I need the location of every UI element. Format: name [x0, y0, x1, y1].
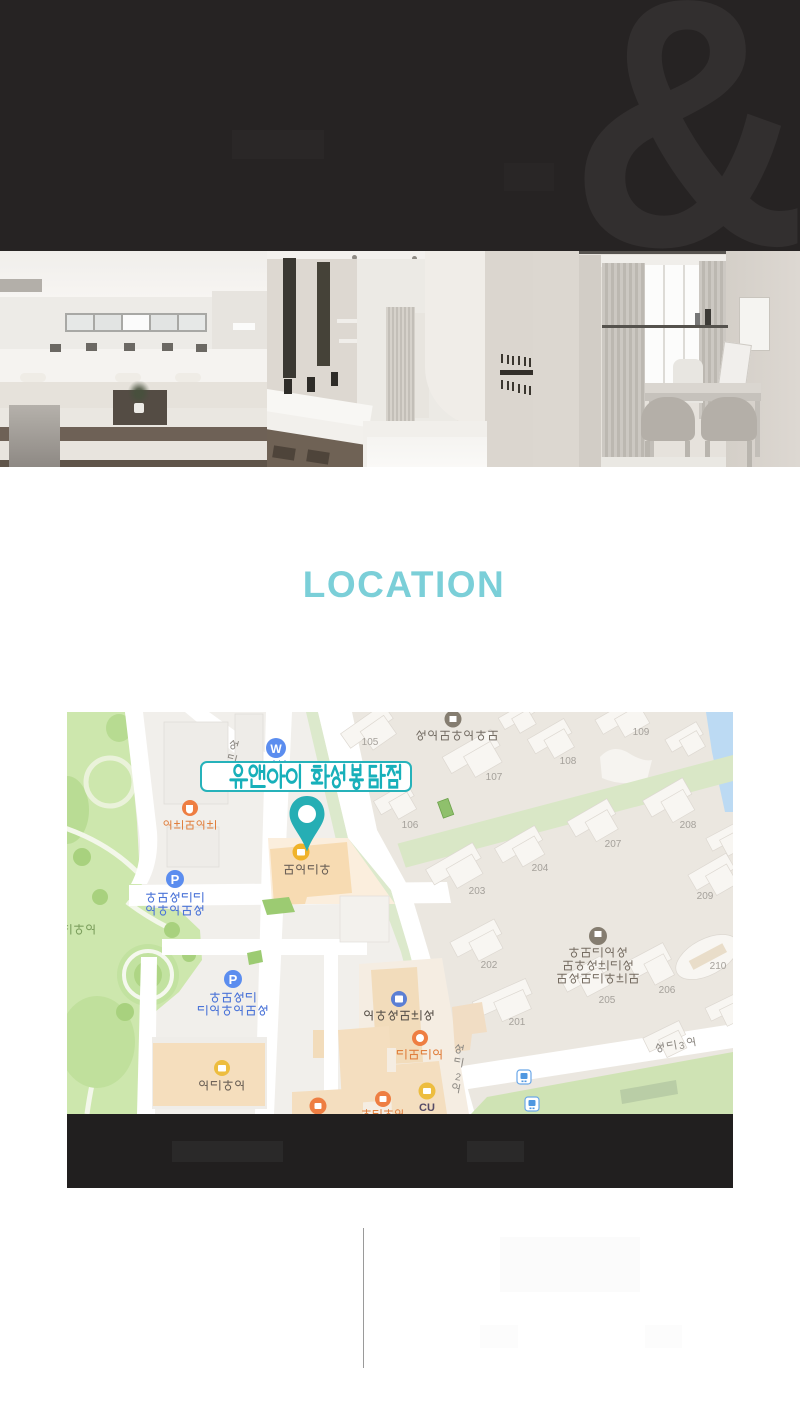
- svg-text:CU: CU: [419, 1102, 435, 1114]
- svg-text:207: 207: [605, 839, 622, 850]
- svg-text:209: 209: [697, 891, 714, 902]
- svg-text:109: 109: [633, 727, 650, 738]
- svg-text:202: 202: [481, 960, 498, 971]
- svg-text:W: W: [270, 742, 282, 756]
- svg-text:203: 203: [469, 886, 486, 897]
- svg-text:210: 210: [710, 961, 727, 972]
- svg-text:P: P: [229, 972, 238, 987]
- svg-text:205: 205: [599, 995, 616, 1006]
- svg-text:208: 208: [680, 820, 697, 831]
- svg-text:201: 201: [509, 1017, 526, 1028]
- svg-text:106: 106: [402, 820, 419, 831]
- svg-text:105: 105: [362, 737, 379, 748]
- svg-text:P: P: [171, 872, 180, 887]
- svg-text:108: 108: [560, 756, 577, 767]
- svg-text:206: 206: [659, 985, 676, 996]
- svg-text:204: 204: [532, 863, 549, 874]
- svg-text:107: 107: [486, 772, 503, 783]
